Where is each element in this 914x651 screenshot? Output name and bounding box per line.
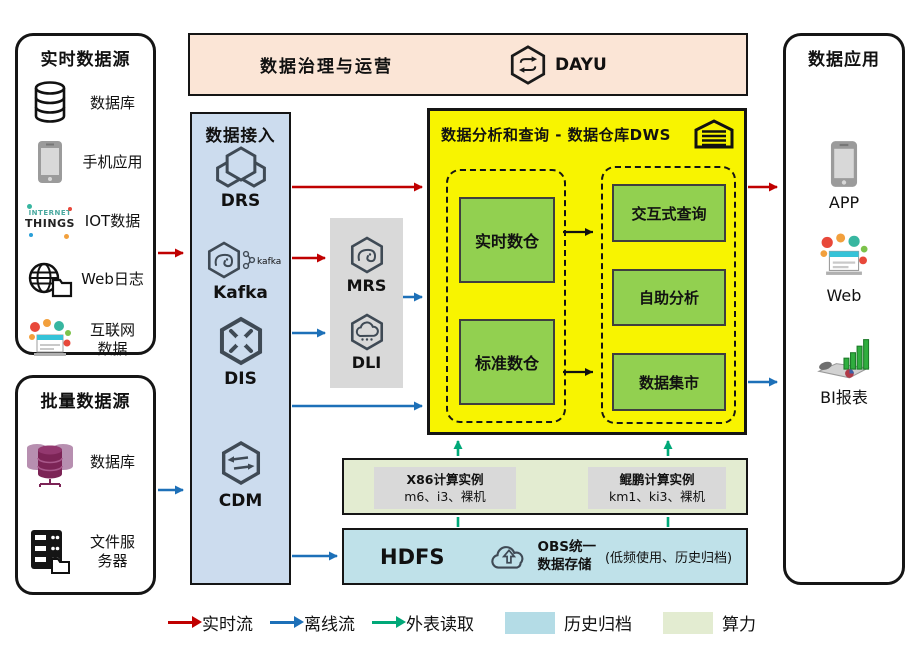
legend-realtime-flow: 实时流 <box>168 610 253 635</box>
dws-title-row: 数据分析和查询 - 数据仓库DWS <box>430 111 744 150</box>
warehouse-icon <box>693 118 735 150</box>
source-item-label: 手机应用 <box>77 153 148 172</box>
realtime-sources-panel: 实时数据源 数据库 手机应用 <box>15 33 156 355</box>
bi-report-icon <box>816 332 872 380</box>
cdm-icon <box>214 436 268 490</box>
source-item-file-server: 文件服务器 <box>23 516 148 588</box>
batch-sources-panel: 批量数据源 <box>15 375 156 595</box>
svg-text:kafka: kafka <box>257 257 281 267</box>
source-item-batch-database: 数据库 <box>23 416 148 508</box>
source-item-internet: 互联网数据 <box>23 308 148 372</box>
green-swatch-icon <box>663 612 713 634</box>
hdfs-label: HDFS <box>380 545 444 569</box>
kafka-icon: kafka <box>198 238 284 282</box>
iot-wordcloud-icon: INTERNET THINGS <box>23 201 77 241</box>
app-item-web: Web <box>786 232 902 305</box>
batch-sources-title: 批量数据源 <box>18 387 153 412</box>
dis-icon <box>214 314 268 368</box>
storage-panel: HDFS OBS统一 数据存储 (低频使用、历史归档) <box>342 528 748 585</box>
dws-title: 数据分析和查询 - 数据仓库DWS <box>441 124 671 145</box>
green-arrow-icon <box>372 621 397 624</box>
legend-external-read: 外表读取 <box>372 610 474 635</box>
governance-title: 数据治理与运营 <box>260 52 393 77</box>
processing-panel: MRS DLI <box>330 218 403 388</box>
dws-panel: 数据分析和查询 - 数据仓库DWS 实时数仓 标准数仓 交互式查询 自助分析 数… <box>427 108 747 435</box>
app-item-bi: BI报表 <box>786 332 902 408</box>
source-item-mobile-app: 手机应用 <box>23 134 148 190</box>
source-item-database: 数据库 <box>23 76 148 130</box>
blue-swatch-icon <box>505 612 555 634</box>
architecture-diagram: 实时数据源 数据库 手机应用 <box>0 0 914 651</box>
service-cdm: CDM <box>192 436 289 511</box>
dws-warehouse-group: 实时数仓 标准数仓 <box>446 169 566 423</box>
warehouse-realtime: 实时数仓 <box>459 197 555 283</box>
service-kafka: kafka Kafka <box>192 238 289 303</box>
warehouse-standard: 标准数仓 <box>459 319 555 405</box>
legend: 实时流 离线流 外表读取 历史归档 算力 <box>168 610 756 635</box>
obs-cloud-icon <box>486 539 532 575</box>
app-item-app: APP <box>786 139 902 212</box>
mrs-icon <box>344 234 390 276</box>
service-dis: DIS <box>192 314 289 389</box>
database-icon <box>23 80 77 126</box>
dayu-icon <box>508 43 548 87</box>
phone-icon <box>23 139 77 185</box>
source-item-label: IOT数据 <box>77 212 148 231</box>
kunpeng-instances: 鲲鹏计算实例 km1、ki3、裸机 <box>588 467 726 509</box>
app-phone-icon <box>827 139 861 189</box>
service-data-mart: 数据集市 <box>612 353 726 411</box>
source-item-label: 数据库 <box>77 453 148 472</box>
blue-arrow-icon <box>270 621 295 624</box>
source-item-web-log: Web日志 <box>23 252 148 306</box>
legend-compute-power: 算力 <box>663 610 756 635</box>
service-self-analysis: 自助分析 <box>612 269 726 326</box>
realtime-sources-title: 实时数据源 <box>18 45 153 70</box>
service-dli: DLI <box>344 311 390 372</box>
database-cluster-icon <box>23 434 77 490</box>
service-drs: DRS <box>192 146 289 211</box>
dayu-group: DAYU <box>508 43 607 87</box>
compute-panel: X86计算实例 m6、i3、裸机 鲲鹏计算实例 km1、ki3、裸机 <box>342 458 748 515</box>
data-access-panel: 数据接入 DRS kafka Kafka <box>190 112 291 585</box>
legend-offline-flow: 离线流 <box>270 610 355 635</box>
web-icon <box>816 232 872 282</box>
source-item-label: Web日志 <box>77 270 148 289</box>
governance-banner: 数据治理与运营 DAYU <box>188 33 748 96</box>
data-access-title: 数据接入 <box>192 122 289 146</box>
dayu-label: DAYU <box>555 55 607 75</box>
legend-history-archive: 历史归档 <box>505 610 632 635</box>
data-apps-panel: 数据应用 APP Web <box>783 33 905 585</box>
dli-icon <box>344 311 390 353</box>
file-server-icon <box>23 528 77 576</box>
source-item-label: 互联网数据 <box>87 321 139 359</box>
globe-folder-icon <box>23 259 77 299</box>
data-apps-title: 数据应用 <box>786 45 902 70</box>
red-arrow-icon <box>168 621 193 624</box>
source-item-iot: INTERNET THINGS IOT数据 <box>23 194 148 248</box>
source-item-label: 数据库 <box>77 94 148 113</box>
source-item-label: 文件服务器 <box>87 533 139 571</box>
storage-note: (低频使用、历史归档) <box>605 547 732 566</box>
obs-title: OBS统一 数据存储 <box>537 539 596 574</box>
service-interactive-query: 交互式查询 <box>612 184 726 242</box>
drs-icon <box>213 146 269 190</box>
service-mrs: MRS <box>344 234 390 295</box>
x86-instances: X86计算实例 m6、i3、裸机 <box>374 467 516 509</box>
dws-service-group: 交互式查询 自助分析 数据集市 <box>601 166 736 424</box>
internet-bubbles-icon <box>23 318 77 362</box>
